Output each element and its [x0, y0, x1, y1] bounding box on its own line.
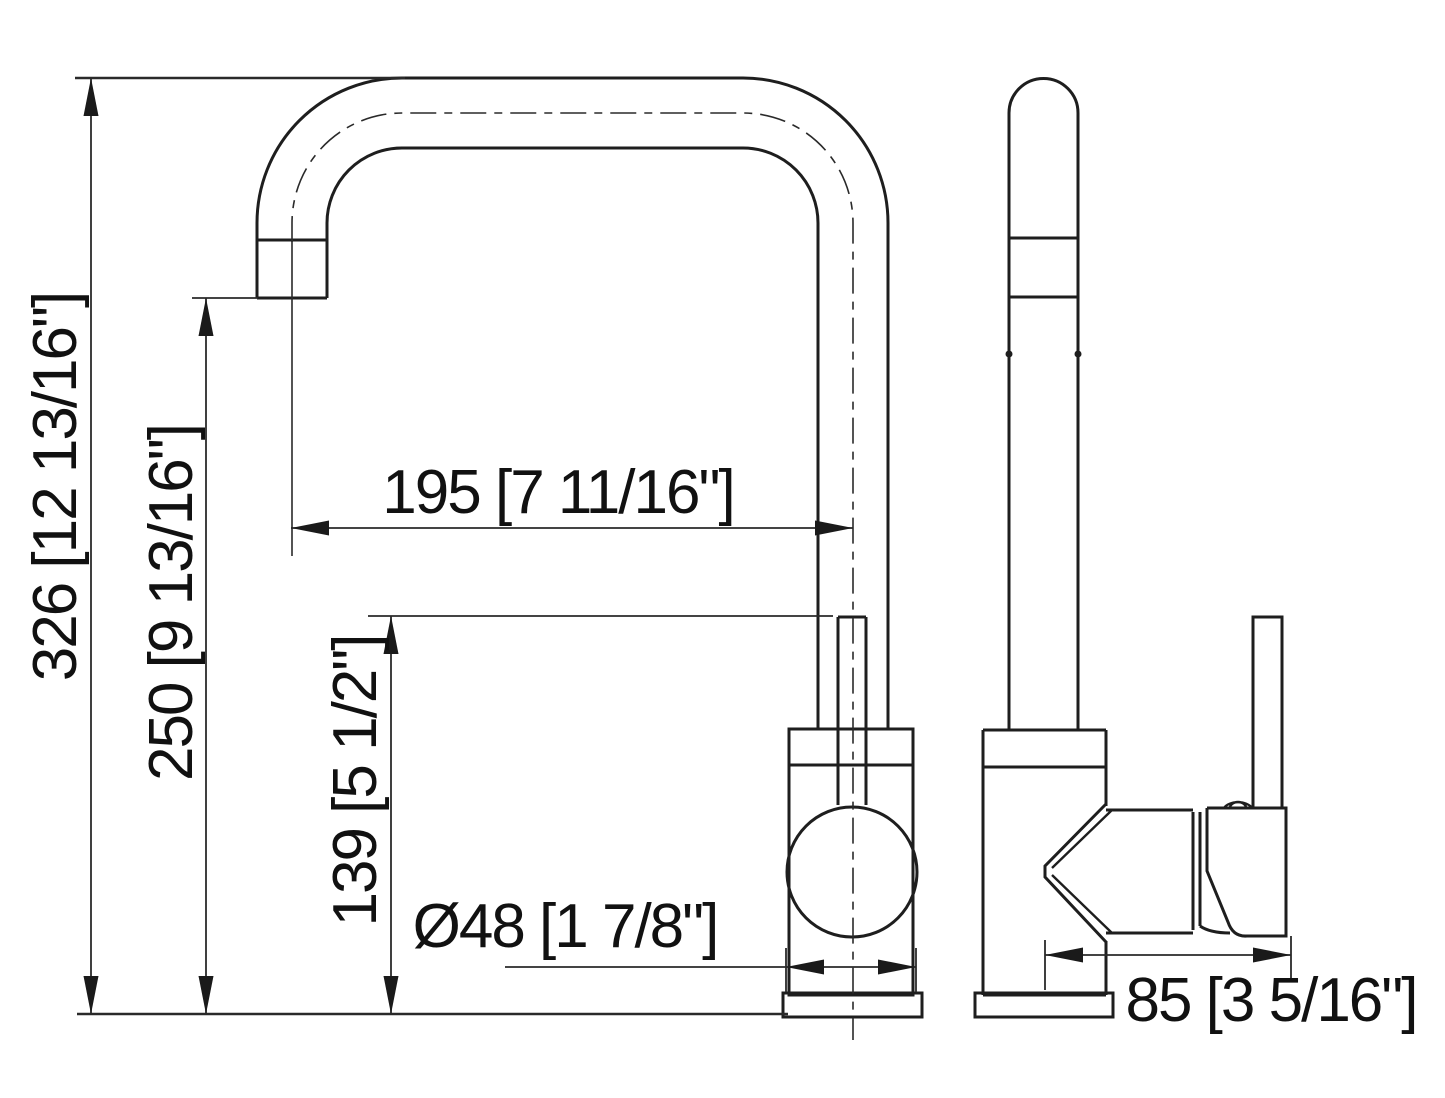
- arrow-326-bottom: [84, 976, 99, 1014]
- side-view: [975, 79, 1286, 1018]
- side-handle-lever: [1253, 617, 1282, 808]
- spout-inner-outline: [327, 148, 818, 729]
- technical-drawing: 326 [12 13/16"] 250 [9 13/16"] 139 [5 1/…: [0, 0, 1445, 1098]
- arrow-250-top: [199, 298, 214, 336]
- side-tube-weld-dot-right: [1075, 351, 1082, 358]
- front-body: [789, 729, 913, 995]
- dim-label-handle-length: 85 [3 5/16"]: [1125, 970, 1416, 1032]
- spout-outer-outline: [257, 78, 888, 729]
- arrow-139-bottom: [384, 976, 399, 1014]
- faucet-line-drawing: [0, 0, 1445, 1098]
- dim-label-spout-height: 250 [9 13/16"]: [141, 425, 203, 781]
- side-base-plate: [975, 993, 1113, 1017]
- front-handle-pivot-circle: [787, 807, 917, 937]
- dim-label-spout-reach: 195 [7 11/16"]: [382, 462, 733, 524]
- arrow-48-right: [878, 960, 916, 975]
- dim-label-body-diameter: Ø48 [1 7/8"]: [413, 896, 718, 958]
- arrow-326-top: [84, 78, 99, 116]
- arrow-48-left: [786, 960, 824, 975]
- arrow-85-left: [1045, 948, 1083, 963]
- arrow-85-right: [1253, 948, 1291, 963]
- side-tube-weld-dot-left: [1006, 351, 1013, 358]
- arrow-195-left: [291, 521, 329, 536]
- side-tube: [1009, 79, 1078, 731]
- side-handle-grip: [1207, 808, 1286, 936]
- arrow-195-right: [815, 521, 853, 536]
- arrow-250-bottom: [199, 976, 214, 1014]
- dim-label-overall-height: 326 [12 13/16"]: [25, 293, 87, 681]
- dim-label-handle-height: 139 [5 1/2"]: [325, 635, 387, 926]
- dimension-arrowheads: [84, 78, 1292, 1014]
- front-handle-stem: [838, 617, 866, 805]
